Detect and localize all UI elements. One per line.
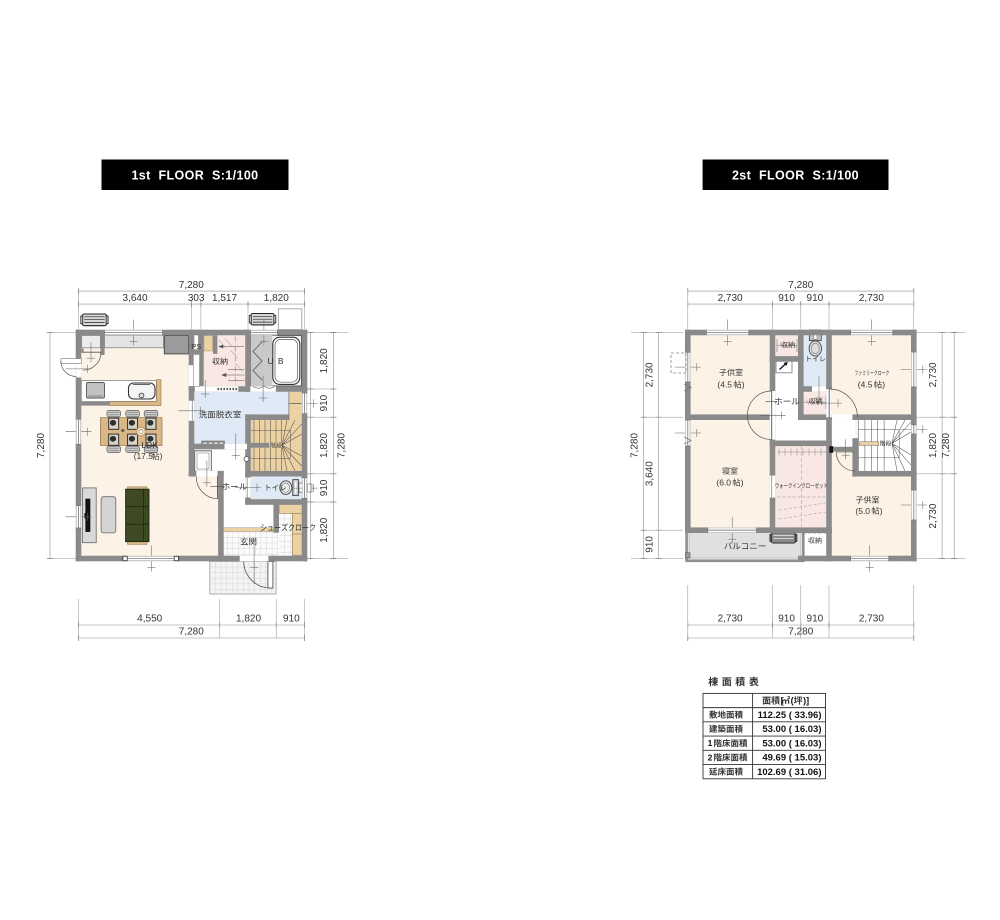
svg-text:7,280: 7,280 — [179, 627, 204, 638]
svg-text:2,730: 2,730 — [718, 614, 743, 625]
svg-text:7,280: 7,280 — [788, 627, 813, 638]
svg-text:53.00 ( 16.03): 53.00 ( 16.03) — [762, 738, 821, 749]
svg-text:(: ( — [791, 696, 794, 706]
svg-text:)]: )] — [803, 696, 809, 706]
svg-text:PS: PS — [191, 342, 201, 351]
svg-text:1st FLOOR S:1/100: 1st FLOOR S:1/100 — [131, 169, 258, 183]
svg-text:(6.0: (6.0 — [716, 478, 731, 488]
svg-text:7,280: 7,280 — [788, 280, 813, 291]
svg-text:1,820: 1,820 — [319, 433, 330, 458]
svg-text:49.69 ( 15.03): 49.69 ( 15.03) — [762, 753, 821, 764]
svg-text:4,550: 4,550 — [137, 614, 162, 625]
svg-text:2,730: 2,730 — [718, 293, 743, 304]
svg-text:2,730: 2,730 — [644, 362, 655, 387]
svg-text:910: 910 — [319, 479, 330, 496]
svg-text:1,820: 1,820 — [319, 517, 330, 542]
svg-text:): ) — [742, 380, 745, 390]
svg-text:(17.5: (17.5 — [134, 451, 154, 461]
svg-text:7,280: 7,280 — [941, 433, 952, 458]
svg-text:2,730: 2,730 — [928, 503, 939, 528]
svg-text:(5.0: (5.0 — [855, 506, 870, 516]
svg-text:303: 303 — [188, 293, 205, 304]
svg-text:910: 910 — [319, 394, 330, 411]
svg-text:(4.5: (4.5 — [858, 380, 873, 390]
svg-text:910: 910 — [778, 614, 795, 625]
svg-text:1: 1 — [708, 738, 713, 748]
svg-text:112.25 ( 33.96): 112.25 ( 33.96) — [758, 710, 822, 721]
svg-text:910: 910 — [807, 614, 824, 625]
svg-text:LDK: LDK — [141, 440, 158, 450]
svg-text:): ) — [880, 506, 883, 516]
svg-text:7,280: 7,280 — [337, 433, 348, 458]
svg-text:2st FLOOR S:1/100: 2st FLOOR S:1/100 — [732, 169, 859, 183]
svg-text:): ) — [882, 380, 885, 390]
svg-text:1,517: 1,517 — [212, 293, 237, 304]
svg-text:U B: U B — [267, 356, 284, 366]
svg-text:): ) — [160, 451, 163, 461]
svg-text:2,730: 2,730 — [928, 362, 939, 387]
svg-text:2,730: 2,730 — [859, 614, 884, 625]
svg-text:7,280: 7,280 — [36, 433, 47, 458]
svg-text:910: 910 — [778, 293, 795, 304]
svg-text:7,280: 7,280 — [179, 280, 204, 291]
svg-text:1,820: 1,820 — [928, 433, 939, 458]
svg-text:1,820: 1,820 — [236, 614, 261, 625]
svg-text:910: 910 — [283, 614, 300, 625]
svg-text:3,640: 3,640 — [122, 293, 147, 304]
svg-text:3,640: 3,640 — [644, 461, 655, 486]
svg-text:102.69 ( 31.06): 102.69 ( 31.06) — [757, 767, 821, 778]
svg-text:53.00 ( 16.03): 53.00 ( 16.03) — [762, 724, 821, 735]
svg-text:): ) — [741, 478, 744, 488]
svg-text:7,280: 7,280 — [630, 433, 641, 458]
svg-text:910: 910 — [807, 293, 824, 304]
svg-text:(4.5: (4.5 — [717, 380, 732, 390]
svg-text:2: 2 — [708, 752, 713, 762]
svg-text:1,820: 1,820 — [319, 348, 330, 373]
svg-text:2,730: 2,730 — [859, 293, 884, 304]
svg-text:910: 910 — [644, 536, 655, 553]
svg-text:1,820: 1,820 — [264, 293, 289, 304]
